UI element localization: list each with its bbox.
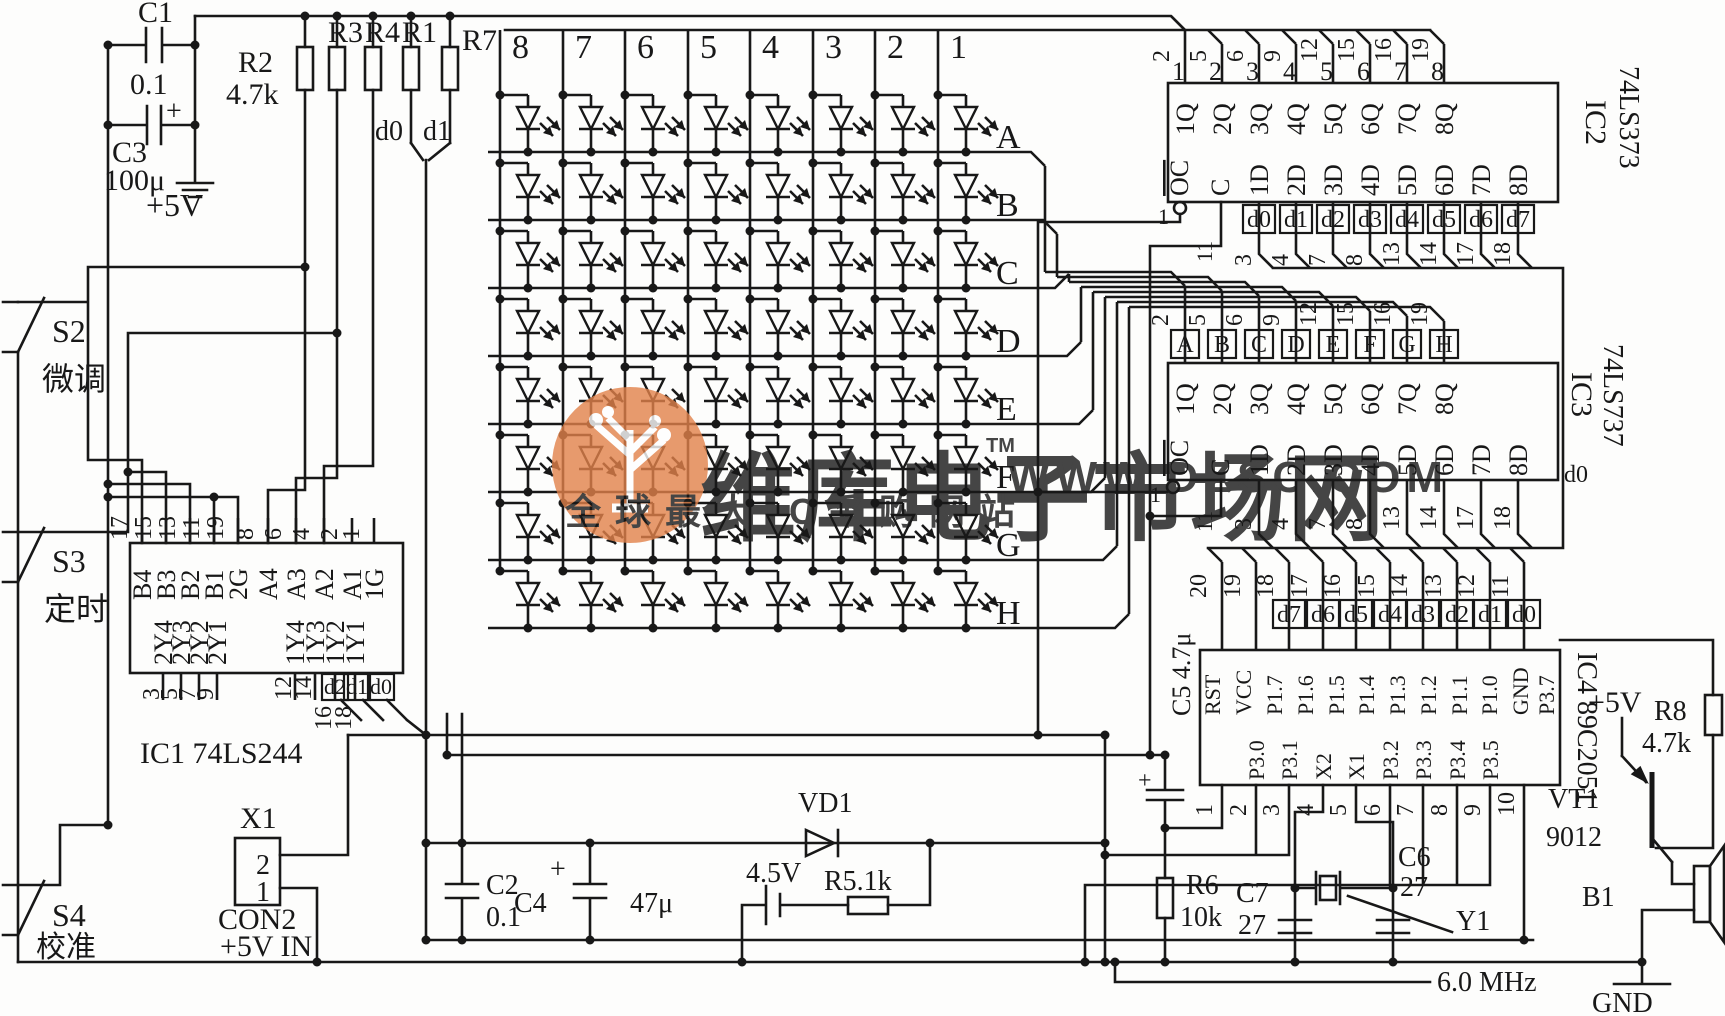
led bbox=[892, 583, 914, 605]
wire bbox=[563, 299, 603, 356]
ic4-top-pin: 16 bbox=[1320, 574, 1346, 598]
junction-dot bbox=[301, 263, 310, 272]
ic4-top-pin: 15 bbox=[1354, 574, 1380, 598]
ic2-bottom-pin: 18 bbox=[1490, 242, 1516, 266]
bottom-c4-label: C4 bbox=[514, 888, 547, 919]
ic3-q-label: 4Q bbox=[1282, 383, 1311, 415]
ic2-bottom-pin: 14 bbox=[1416, 242, 1442, 266]
ic3-q-label: 6Q bbox=[1356, 383, 1385, 415]
junction-dot bbox=[104, 493, 113, 502]
power-plus-label: + bbox=[166, 96, 182, 127]
wire bbox=[750, 95, 790, 152]
led bbox=[830, 379, 852, 401]
wire bbox=[875, 299, 915, 356]
bottom-vd1-label: VD1 bbox=[798, 788, 852, 819]
power-c1_value-label: 0.1 bbox=[130, 68, 168, 101]
matrix-row-label: E bbox=[996, 391, 1017, 428]
ic2-q-label: 5Q bbox=[1319, 103, 1348, 135]
ic1-data-tag: d0 bbox=[370, 674, 392, 699]
led bbox=[705, 379, 727, 401]
ic4-data-tag: d0 bbox=[1512, 602, 1536, 628]
ic3-q-label: 5Q bbox=[1319, 383, 1348, 415]
pullups-d1-label: d1 bbox=[423, 116, 451, 147]
ic1-top-label: 1G bbox=[360, 568, 389, 600]
led bbox=[955, 107, 977, 129]
ic3-pin-number: 2 bbox=[1148, 314, 1174, 326]
junction-dot bbox=[1389, 884, 1398, 893]
ic1-bottom-pin: 14 bbox=[291, 676, 317, 700]
ic2-pin-index: 2 bbox=[1209, 57, 1222, 86]
ic2-d-label: 2D bbox=[1282, 164, 1311, 196]
wire bbox=[750, 299, 790, 356]
ic2-data-tag: d0 bbox=[1247, 207, 1271, 233]
matrix-col-header: 6 bbox=[637, 29, 654, 66]
schematic-scan-page: 87654321ABCDEFGH211Q522Q633Q944Q1255Q156… bbox=[0, 0, 1725, 1016]
ic4-name-label: IC4 89C2051 bbox=[1571, 652, 1602, 804]
junction-dot bbox=[1520, 936, 1529, 945]
ic3-bottom-pin: 14 bbox=[1416, 506, 1442, 530]
ic4-bottom-label: P3.4 bbox=[1445, 740, 1470, 780]
bottom-c7_value-label: 27 bbox=[1238, 910, 1266, 941]
ic2-d-label: 4D bbox=[1356, 164, 1385, 196]
matrix-row-label: H bbox=[996, 595, 1021, 632]
matrix-col-header: 7 bbox=[575, 29, 592, 66]
junction-dot bbox=[1291, 958, 1300, 967]
wire bbox=[938, 231, 978, 288]
wire bbox=[750, 367, 790, 424]
ic3-row-tag: C bbox=[1251, 332, 1267, 358]
matrix-col-header: 1 bbox=[950, 29, 967, 66]
wire bbox=[500, 435, 540, 492]
ic4-data-tag: d7 bbox=[1277, 602, 1301, 628]
led bbox=[580, 243, 602, 265]
ic2-d-label: 6D bbox=[1430, 164, 1459, 196]
wire bbox=[500, 299, 540, 356]
wire bbox=[625, 571, 665, 628]
led bbox=[705, 107, 727, 129]
ic2-name-label: IC2 bbox=[1579, 100, 1612, 145]
ic2-bottom-pin: 7 bbox=[1305, 254, 1331, 266]
ic4-bottom-label: X1 bbox=[1344, 753, 1369, 780]
ic1-name-label: IC1 74LS244 bbox=[140, 737, 303, 770]
resistor-r8 bbox=[1705, 695, 1722, 735]
bottom-c4_value-label: 47μ bbox=[630, 888, 673, 919]
wire bbox=[938, 367, 978, 424]
junction-dot bbox=[1081, 958, 1090, 967]
ic2-d-label: 7D bbox=[1467, 164, 1496, 196]
wire bbox=[688, 95, 728, 152]
ic1-top-pin: 17 bbox=[107, 516, 133, 540]
wire bbox=[813, 163, 853, 220]
led bbox=[830, 175, 852, 197]
wire bbox=[500, 367, 540, 424]
ic3-d0_note-label: d0 bbox=[1564, 462, 1588, 488]
junction-dot bbox=[1111, 958, 1120, 967]
ic3-pin-number: 6 bbox=[1222, 314, 1248, 326]
junction-dot bbox=[124, 468, 133, 477]
ic2-pin-index: 3 bbox=[1246, 57, 1259, 86]
ic4-bottom-label: P3.5 bbox=[1478, 740, 1503, 780]
ic3-q-label: 2Q bbox=[1208, 383, 1237, 415]
ic4-bottom-pin: 5 bbox=[1326, 804, 1352, 816]
matrix-col-header: 4 bbox=[762, 29, 779, 66]
wire bbox=[750, 231, 790, 288]
watermark-url: WWW.DZSC.COM bbox=[1008, 453, 1449, 502]
ic4-bottom-pin: 6 bbox=[1360, 804, 1386, 816]
wire bbox=[938, 163, 978, 220]
ic3-part-label: 74LS737 bbox=[1597, 344, 1628, 447]
ic2-d-label: 8D bbox=[1504, 164, 1533, 196]
bottom-freq-label: 6.0 MHz bbox=[1437, 967, 1537, 998]
ic4-bottom-label: P3.0 bbox=[1244, 740, 1269, 780]
ic2-q-label: 8Q bbox=[1430, 103, 1459, 135]
ic4-top-label: P1.0 bbox=[1477, 675, 1502, 715]
bottom-c7-label: C7 bbox=[1236, 878, 1269, 909]
wire bbox=[563, 163, 603, 220]
ic4-top-pin: 18 bbox=[1253, 574, 1279, 598]
ic3-pin-number: 9 bbox=[1259, 314, 1285, 326]
ic4-bottom-label: P3.2 bbox=[1378, 740, 1403, 780]
junction-dot bbox=[422, 731, 431, 740]
junction-dot bbox=[191, 41, 200, 50]
ic2-data-tag: d1 bbox=[1284, 207, 1308, 233]
ic3-q-label: 8Q bbox=[1430, 383, 1459, 415]
watermark-slogan: 全球最大IC采购网站 bbox=[564, 491, 1029, 532]
led bbox=[705, 243, 727, 265]
ic3-row-tag: G bbox=[1398, 332, 1415, 358]
wire bbox=[938, 571, 978, 628]
ic2-74ls373: 211Q522Q633Q944Q1255Q1566Q1677Q1988QOCC1… bbox=[1149, 16, 1534, 268]
speaker-cone bbox=[1710, 846, 1724, 942]
junction-dot bbox=[104, 480, 113, 489]
pullups-r7-label: R7 bbox=[462, 24, 497, 57]
ic2-pin-index: 6 bbox=[1357, 57, 1370, 86]
led bbox=[642, 107, 664, 129]
wire bbox=[875, 163, 915, 220]
ic2-q-label: 2Q bbox=[1208, 103, 1237, 135]
junction-dot bbox=[1034, 731, 1043, 740]
junction-dot bbox=[1161, 824, 1170, 833]
led bbox=[517, 515, 539, 537]
ic4-bottom-pin: 2 bbox=[1226, 804, 1252, 816]
led bbox=[517, 447, 539, 469]
ic2-q-label: 3Q bbox=[1245, 103, 1274, 135]
switches-s2-label: S2 bbox=[52, 313, 86, 349]
ic4-data-tag: d2 bbox=[1445, 602, 1469, 628]
led bbox=[767, 379, 789, 401]
ic2-oc-label: OC bbox=[1165, 160, 1194, 196]
ic4-data-tag: d1 bbox=[1478, 602, 1502, 628]
ic2-d-label: 1D bbox=[1245, 164, 1274, 196]
ic3-name-label: IC3 bbox=[1565, 372, 1598, 417]
ic2-q-label: 6Q bbox=[1356, 103, 1385, 135]
junction-dot bbox=[104, 41, 113, 50]
junction-dot bbox=[210, 493, 219, 502]
ic4-89c2051: 201918d717d616d515d414d313d212d111d0RSTV… bbox=[1186, 548, 1559, 816]
wire bbox=[688, 571, 728, 628]
matrix-row-label: A bbox=[996, 119, 1021, 156]
output-gnd-label: GND bbox=[1592, 988, 1653, 1016]
bottom-battery-label: 4.5V bbox=[746, 858, 801, 889]
ic2-oc_pin-label: 1 bbox=[1158, 204, 1169, 229]
led bbox=[705, 583, 727, 605]
ic4-top-label: P3.7 bbox=[1534, 675, 1559, 715]
crystal-y1-body bbox=[1320, 876, 1336, 900]
junction-dot bbox=[738, 958, 747, 967]
led bbox=[892, 107, 914, 129]
ic3-row-tag: E bbox=[1326, 332, 1341, 358]
wire bbox=[813, 299, 853, 356]
ic1-bottom-label: 1Y1 bbox=[341, 620, 370, 665]
ic4-bottom-label: P3.1 bbox=[1277, 740, 1302, 780]
ic2-d-label: 5D bbox=[1393, 164, 1422, 196]
ic3-row-tag: D bbox=[1287, 332, 1304, 358]
bottom-r6-label: R6 bbox=[1186, 870, 1219, 901]
led bbox=[955, 379, 977, 401]
bottom-c6-label: C6 bbox=[1398, 842, 1431, 873]
ic4-bottom-pin: 10 bbox=[1494, 792, 1520, 816]
wire bbox=[563, 231, 603, 288]
ic2-pin-index: 1 bbox=[1172, 57, 1185, 86]
ic1-top-label: A3 bbox=[282, 568, 311, 600]
ic4-top-label: P1.6 bbox=[1293, 675, 1318, 715]
ic3-d-label: 7D bbox=[1467, 444, 1496, 476]
ic4-data-tag: d3 bbox=[1411, 602, 1435, 628]
ic2-pin-index: 4 bbox=[1283, 57, 1296, 86]
ic2-bottom-pin: 3 bbox=[1231, 254, 1257, 266]
junction-dot bbox=[422, 839, 431, 848]
wire bbox=[875, 231, 915, 288]
matrix-col-header: 3 bbox=[825, 29, 842, 66]
ic2-data-tag: d3 bbox=[1358, 207, 1382, 233]
ic2-data-tag: d4 bbox=[1395, 207, 1419, 233]
junction-dot bbox=[586, 839, 595, 848]
ic2-oc-bubble bbox=[1174, 202, 1186, 214]
ic4-top-label: P1.2 bbox=[1416, 675, 1441, 715]
ic2-pin-index: 7 bbox=[1394, 57, 1407, 86]
ic1-bottom-pin: 9 bbox=[193, 688, 219, 700]
junction-dot bbox=[1101, 851, 1110, 860]
ic4-top-pin: 14 bbox=[1387, 574, 1413, 598]
ic4-top-label: P1.5 bbox=[1324, 675, 1349, 715]
ic3-pin-number: 5 bbox=[1185, 314, 1211, 326]
wire bbox=[813, 95, 853, 152]
ic3-d-label: 8D bbox=[1504, 444, 1533, 476]
resistor-r5 bbox=[848, 897, 888, 914]
ic3-pin-number: 16 bbox=[1370, 302, 1396, 326]
wire bbox=[625, 299, 665, 356]
pullups-r1-label: R1 bbox=[402, 16, 437, 49]
switches-s4_cn-label: 校准 bbox=[36, 931, 96, 964]
led bbox=[955, 175, 977, 197]
resistor-r2 bbox=[297, 47, 313, 90]
ic2-bottom-pin: 13 bbox=[1379, 242, 1405, 266]
ic3-pin-number: 19 bbox=[1407, 302, 1433, 326]
ic4-bottom-pin: 3 bbox=[1259, 804, 1285, 816]
bottom-c6_value-label: 27 bbox=[1400, 872, 1428, 903]
wire bbox=[1208, 548, 1222, 650]
ic2-d-label: 3D bbox=[1319, 164, 1348, 196]
led bbox=[517, 583, 539, 605]
ic4-bottom-pin: 4 bbox=[1293, 804, 1319, 816]
ic2-bottom-pin: 17 bbox=[1453, 242, 1479, 266]
wire bbox=[688, 367, 728, 424]
junction-dot bbox=[422, 936, 431, 945]
junction-dot bbox=[1101, 839, 1110, 848]
matrix-row-label: C bbox=[996, 255, 1019, 292]
wire bbox=[875, 571, 915, 628]
ic1-top-pin: 6 bbox=[261, 528, 287, 540]
junction-dot bbox=[104, 821, 113, 830]
ic2-data-tag: d2 bbox=[1321, 207, 1345, 233]
led bbox=[767, 243, 789, 265]
junction-dot bbox=[458, 936, 467, 945]
ic1-top-pin: 11 bbox=[179, 517, 205, 540]
matrix-col-header: 2 bbox=[887, 29, 904, 66]
ic4-c5-label: C5 4.7μ bbox=[1167, 633, 1196, 716]
junction-dot bbox=[1101, 731, 1110, 740]
resistor-r4 bbox=[365, 47, 381, 90]
matrix-row-label: D bbox=[996, 323, 1021, 360]
resistor-r3 bbox=[329, 47, 345, 90]
led bbox=[830, 311, 852, 333]
ic2-bottom-pin: 8 bbox=[1342, 254, 1368, 266]
junction-dot bbox=[313, 958, 322, 967]
led bbox=[517, 107, 539, 129]
led bbox=[892, 379, 914, 401]
ic4-data-tag: d5 bbox=[1344, 602, 1368, 628]
junction-dot bbox=[1291, 884, 1300, 893]
wire bbox=[813, 571, 853, 628]
ic4-top-pin: 19 bbox=[1220, 574, 1246, 598]
led bbox=[767, 175, 789, 197]
led bbox=[642, 243, 664, 265]
ic3-q-label: 1Q bbox=[1171, 383, 1200, 415]
led bbox=[767, 107, 789, 129]
bottom-y1-label: Y1 bbox=[1456, 906, 1490, 937]
ic1-top-pin: 4 bbox=[289, 528, 315, 540]
junction-dot bbox=[301, 12, 310, 21]
wire bbox=[1518, 480, 1532, 548]
wire bbox=[938, 299, 978, 356]
led bbox=[955, 583, 977, 605]
ic2-data-tag: d5 bbox=[1432, 207, 1456, 233]
pullups-d0-label: d0 bbox=[375, 116, 403, 147]
junction-dot bbox=[1638, 958, 1647, 967]
ic4-bottom-pin: 7 bbox=[1393, 804, 1419, 816]
ic2-pin-index: 5 bbox=[1320, 57, 1333, 86]
power-c1-label: C1 bbox=[138, 0, 173, 29]
ic4-top-label: P1.3 bbox=[1385, 675, 1410, 715]
junction-dot bbox=[333, 329, 342, 338]
junction-dot bbox=[1389, 958, 1398, 967]
junction-dot bbox=[1101, 958, 1110, 967]
ic3-q-label: 3Q bbox=[1245, 383, 1274, 415]
ic4-top-pin: 12 bbox=[1454, 574, 1480, 598]
power-rail-label: +5V bbox=[146, 187, 203, 223]
led bbox=[892, 175, 914, 197]
ic2-bottom-pin: 4 bbox=[1268, 254, 1294, 266]
led bbox=[767, 583, 789, 605]
wire bbox=[813, 367, 853, 424]
ic2-c-label: C bbox=[1206, 179, 1235, 196]
led bbox=[892, 311, 914, 333]
ic4-top-label: P1.7 bbox=[1262, 675, 1287, 715]
wire bbox=[875, 367, 915, 424]
switches-s2_cn-label: 微调 bbox=[42, 361, 106, 397]
ic1-data-tag: d2 bbox=[324, 674, 346, 699]
led bbox=[642, 311, 664, 333]
junction-dot bbox=[1146, 751, 1155, 760]
wire bbox=[625, 231, 665, 288]
ic4-bottom-pin: 9 bbox=[1460, 804, 1486, 816]
wire bbox=[750, 571, 790, 628]
matrix-col-header: 8 bbox=[512, 29, 529, 66]
bottom-c4_plus-label: + bbox=[550, 854, 566, 885]
ic1-top-label: A4 bbox=[254, 568, 283, 600]
led bbox=[767, 311, 789, 333]
ic4-top-pin: 17 bbox=[1287, 574, 1313, 598]
led bbox=[830, 583, 852, 605]
junction-dot bbox=[458, 839, 467, 848]
wire bbox=[938, 95, 978, 152]
junction-dot bbox=[443, 751, 452, 760]
ic4-bottom-pin: 8 bbox=[1427, 804, 1453, 816]
output-b1-label: B1 bbox=[1582, 882, 1615, 913]
led bbox=[705, 311, 727, 333]
connector-name-label: X1 bbox=[240, 802, 277, 835]
switches-s4-label: S4 bbox=[52, 897, 86, 933]
ic4-data-tag: d6 bbox=[1311, 602, 1335, 628]
generated-components: 87654321ABCDEFGH211Q522Q633Q944Q1255Q156… bbox=[107, 16, 1559, 816]
ic3-pin-number: 12 bbox=[1296, 302, 1322, 326]
output-r8-label: R8 bbox=[1654, 696, 1687, 727]
resistor-r1 bbox=[403, 47, 419, 90]
wire bbox=[563, 95, 603, 152]
wire bbox=[750, 163, 790, 220]
ic4-top-label: RST bbox=[1200, 674, 1225, 715]
led bbox=[642, 583, 664, 605]
ic3-row-tag: H bbox=[1435, 332, 1452, 358]
resistor-r7 bbox=[442, 47, 458, 90]
ic4-top-pin: 13 bbox=[1421, 574, 1447, 598]
ic3-row-tag: F bbox=[1363, 332, 1376, 358]
wire bbox=[1242, 548, 1256, 650]
wire bbox=[500, 95, 540, 152]
wire bbox=[813, 231, 853, 288]
led bbox=[580, 107, 602, 129]
led bbox=[517, 379, 539, 401]
matrix-col-header: 5 bbox=[700, 29, 717, 66]
bottom-r5-label: R5.1k bbox=[824, 866, 892, 897]
pullups-r2_value-label: 4.7k bbox=[226, 78, 279, 111]
ic1-top-label: A2 bbox=[310, 568, 339, 600]
ic1-top-pin: 13 bbox=[155, 516, 181, 540]
pullups-r4-label: R4 bbox=[365, 16, 400, 49]
junction-dot bbox=[104, 121, 113, 130]
bottom-r6_value-label: 10k bbox=[1180, 902, 1222, 933]
led bbox=[830, 243, 852, 265]
ic4-top-label: VCC bbox=[1231, 670, 1256, 715]
led bbox=[705, 175, 727, 197]
ic1-74ls244: 17B415B313B211B1192G8A46A34A22A111G2Y432… bbox=[107, 516, 394, 730]
ic4-data-tag: d4 bbox=[1378, 602, 1402, 628]
wire bbox=[875, 95, 915, 152]
ic3-pin-number: 15 bbox=[1333, 302, 1359, 326]
junction-dot bbox=[1161, 958, 1170, 967]
ic4-top-label: GND bbox=[1508, 667, 1533, 715]
ic4-c5_plus-label: + bbox=[1138, 768, 1152, 794]
